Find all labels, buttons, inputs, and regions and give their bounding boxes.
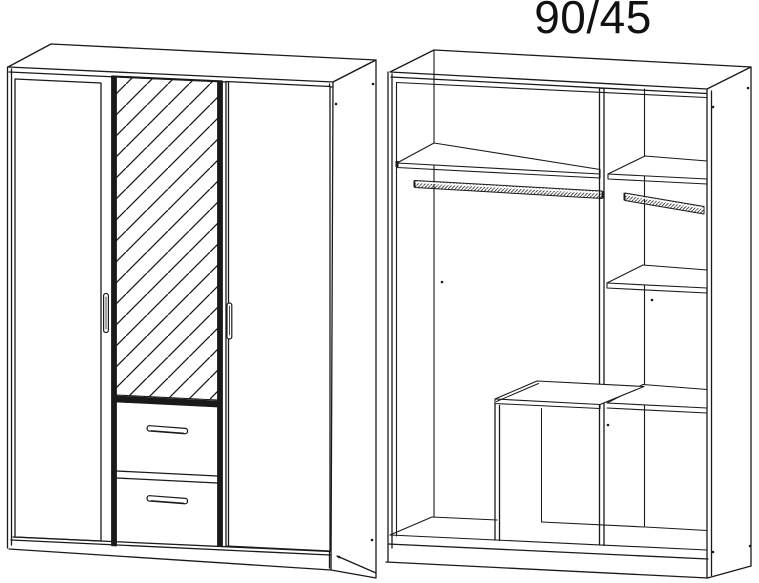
wardrobe-interior-view [386,50,751,578]
shelf-right-2 [607,265,707,293]
furniture-diagram: 90/45 [0,0,759,583]
side-panel [330,60,377,578]
top-panel [390,50,751,89]
right-door-handle [227,303,232,339]
shelf-right-1 [608,156,707,184]
drawer-1 [117,471,218,483]
top-shelf-left [397,143,600,178]
shoe-cube [495,381,644,541]
floor-panel [386,517,708,578]
clothes-rail-left [414,180,604,198]
left-door [15,79,101,541]
mirror-hatching [100,60,235,415]
drawer-2-handle [147,496,188,504]
left-door-handle [104,294,109,333]
carcass-edges [8,67,12,548]
clothes-rail-right [624,193,705,214]
carcass [388,50,751,578]
drawer-1-handle [147,426,188,434]
center-divider [600,88,645,546]
right-door [226,82,330,552]
wardrobe-diagram [0,0,759,583]
size-label: 90/45 [503,0,683,41]
wardrobe-exterior-view [8,44,377,578]
